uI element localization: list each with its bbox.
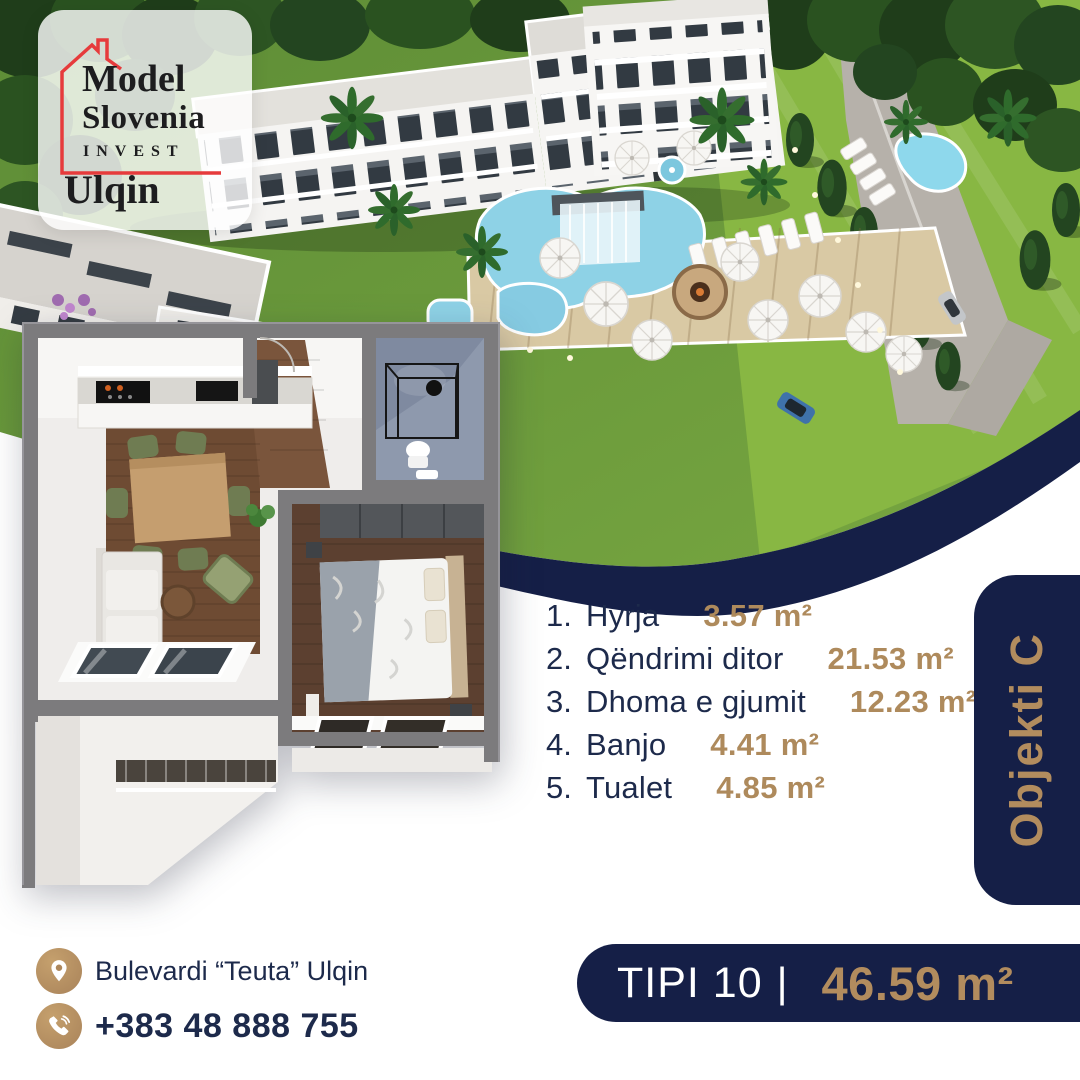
room-number: 3. <box>546 684 586 720</box>
object-banner: Objekti C <box>974 575 1080 905</box>
room-area: 21.53 m² <box>827 641 953 677</box>
room-label: Dhoma e gjumit <box>586 684 806 720</box>
room-area: 4.41 m² <box>710 727 819 763</box>
room-label: Banjo <box>586 727 666 763</box>
small-pool <box>498 283 567 334</box>
balcony <box>36 716 278 885</box>
room-label: Qëndrimi ditor <box>586 641 783 677</box>
logo-line-slovenia: Slovenia <box>82 102 205 135</box>
fire-pit <box>674 266 726 318</box>
phone-text: +383 48 888 755 <box>95 1007 359 1046</box>
type-separator: | <box>777 959 788 1007</box>
bathroom <box>376 338 484 480</box>
total-area: 46.59 m² <box>822 956 1014 1011</box>
room-area: 4.85 m² <box>716 770 825 806</box>
type-banner: TIPI 10 | 46.59 m² <box>577 944 1080 1022</box>
logo-line-ulqin: Ulqin <box>64 170 160 210</box>
room-label: Hyrja <box>586 598 659 634</box>
room-row: 4. Banjo 4.41 m² <box>546 727 976 763</box>
address-row: Bulevardi “Teuta” Ulqin <box>36 948 368 994</box>
room-row: 3. Dhoma e gjumit 12.23 m² <box>546 684 976 720</box>
room-row: 5. Tualet 4.85 m² <box>546 770 976 806</box>
logo-line-invest: INVEST <box>83 144 185 160</box>
location-pin-icon <box>36 948 82 994</box>
bedroom <box>292 504 484 732</box>
room-area: 3.57 m² <box>703 598 812 634</box>
living-windows <box>58 642 256 682</box>
object-label: Objekti C <box>1001 632 1053 848</box>
floor-plan <box>20 320 500 905</box>
logo-line-model: Model <box>82 60 185 98</box>
room-number: 1. <box>546 598 586 634</box>
room-number: 5. <box>546 770 586 806</box>
poster: Model Slovenia INVEST Ulqin 1. Hyrja 3.5… <box>0 0 1080 1080</box>
phone-icon <box>36 1003 82 1049</box>
address-text: Bulevardi “Teuta” Ulqin <box>95 956 368 987</box>
room-row: 1. Hyrja 3.57 m² <box>546 598 976 634</box>
bed <box>320 555 469 702</box>
phone-row: +383 48 888 755 <box>36 1003 368 1049</box>
coffee-table <box>162 586 194 618</box>
room-number: 2. <box>546 641 586 677</box>
contact-block: Bulevardi “Teuta” Ulqin +383 48 888 755 <box>36 948 368 1049</box>
type-label: TIPI 10 <box>617 959 763 1008</box>
room-area: 12.23 m² <box>850 684 976 720</box>
room-row: 2. Qëndrimi ditor 21.53 m² <box>546 641 976 677</box>
room-label: Tualet <box>586 770 672 806</box>
room-number: 4. <box>546 727 586 763</box>
logo-card: Model Slovenia INVEST Ulqin <box>38 10 252 230</box>
room-list: 1. Hyrja 3.57 m² 2. Qëndrimi ditor 21.53… <box>546 598 976 806</box>
sink <box>416 470 438 479</box>
